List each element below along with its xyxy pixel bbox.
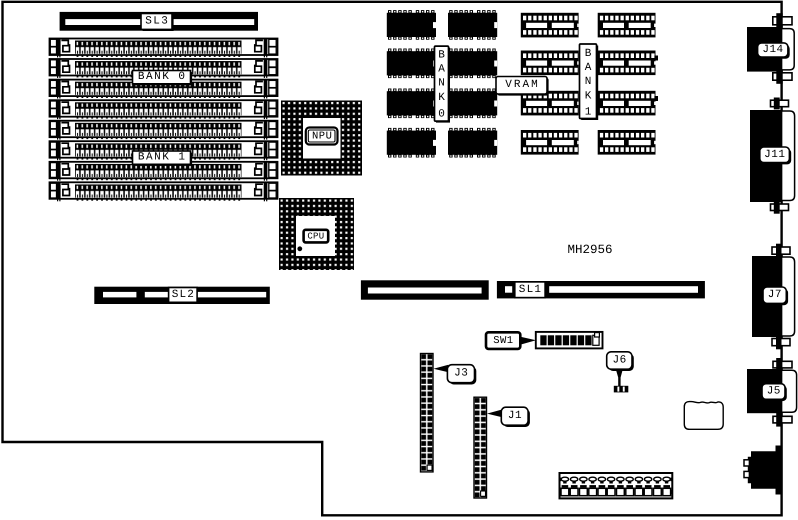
svg-text:MH2956: MH2956 [568, 243, 613, 257]
svg-text:SL3: SL3 [145, 15, 169, 27]
svg-text:J1: J1 [508, 410, 522, 422]
svg-text:J6: J6 [612, 355, 626, 367]
svg-text:J14: J14 [762, 44, 783, 56]
svg-text:J11: J11 [764, 149, 785, 161]
svg-text:SL2: SL2 [172, 289, 195, 301]
svg-text:B: B [438, 50, 445, 62]
svg-text:K: K [438, 92, 445, 104]
svg-text:K: K [585, 91, 592, 103]
svg-text:SL1: SL1 [519, 284, 542, 296]
svg-text:0: 0 [438, 109, 445, 121]
svg-text:N: N [438, 77, 445, 89]
svg-text:VRAM: VRAM [505, 79, 539, 91]
svg-text:CPU: CPU [307, 231, 324, 241]
svg-text:BANK 1: BANK 1 [138, 152, 187, 164]
svg-text:N: N [585, 76, 592, 88]
svg-text:A: A [585, 62, 592, 74]
svg-text:SW1: SW1 [493, 335, 513, 347]
svg-text:J7: J7 [768, 289, 782, 301]
svg-text:J5: J5 [767, 386, 781, 398]
svg-text:B: B [585, 48, 592, 60]
svg-text:1: 1 [585, 107, 592, 119]
svg-text:NPU: NPU [312, 130, 332, 142]
svg-text:A: A [438, 63, 445, 75]
svg-text:J3: J3 [454, 368, 468, 380]
svg-text:BANK 0: BANK 0 [138, 71, 187, 83]
